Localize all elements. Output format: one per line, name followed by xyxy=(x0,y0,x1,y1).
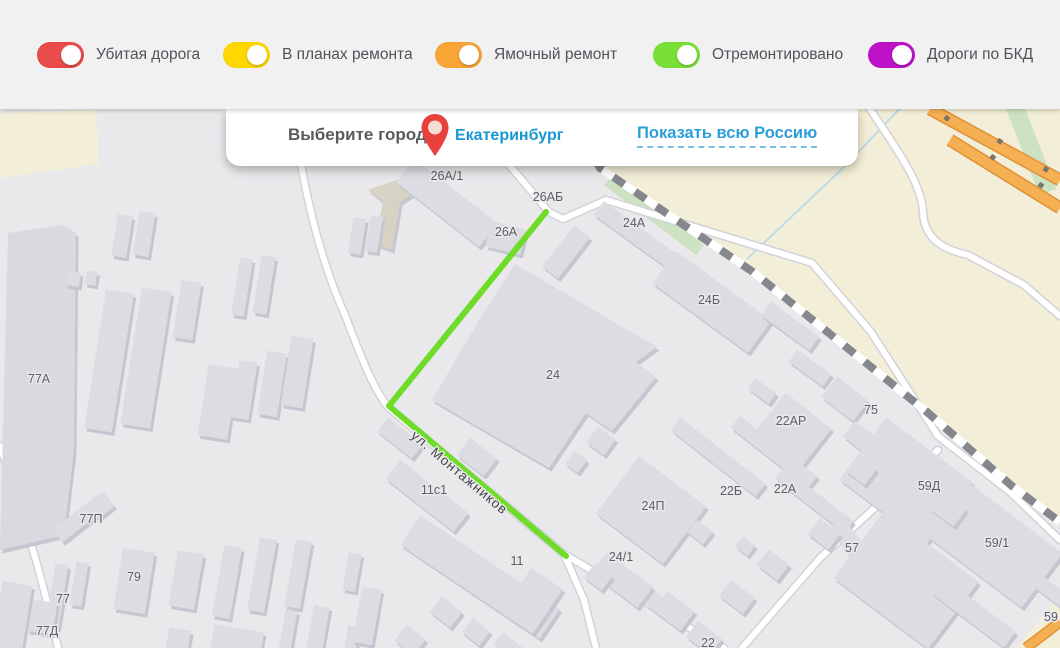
toggle-label: Отремонтировано xyxy=(712,46,843,64)
map-label: 26АБ xyxy=(533,190,563,204)
show-all-russia-link[interactable]: Показать всю Россию xyxy=(637,124,817,148)
toggle-dead-road[interactable] xyxy=(37,42,84,68)
map-label: 26А xyxy=(495,225,518,239)
map-label: 57 xyxy=(845,541,859,555)
map-label: 22Б xyxy=(720,484,742,498)
toggle-label: Убитая дорога xyxy=(96,46,200,64)
toggle-patch-repair[interactable] xyxy=(435,42,482,68)
city-panel: Выберите город: Екатеринбург Показать вс… xyxy=(226,109,858,166)
map-label: 24Б xyxy=(698,293,720,307)
toggle-bkd-roads[interactable] xyxy=(868,42,915,68)
map-label: 11 xyxy=(511,554,524,568)
map-label: 59 xyxy=(1044,610,1058,624)
map-label: 79 xyxy=(127,570,141,584)
map-label: 26А/1 xyxy=(431,169,464,183)
map-pin-icon xyxy=(420,112,450,158)
toggle-knob xyxy=(677,45,697,65)
toggle-repaired[interactable] xyxy=(653,42,700,68)
toggle-planned-repair[interactable] xyxy=(223,42,270,68)
toggle-label: Дороги по БКД xyxy=(927,46,1033,64)
toggle-group-planned: В планах ремонта xyxy=(223,42,413,68)
map-label: 77А xyxy=(28,372,51,386)
map-label: 24А xyxy=(623,216,646,230)
map-label: 11с1 xyxy=(421,483,447,497)
toggle-group-patch-repair: Ямочный ремонт xyxy=(435,42,617,68)
selected-city[interactable]: Екатеринбург xyxy=(455,127,563,145)
toggle-knob xyxy=(459,45,479,65)
map-label: 22 xyxy=(701,636,715,648)
choose-city-label: Выберите город: xyxy=(288,125,432,145)
map-label: 24 xyxy=(546,368,560,382)
map-label: 24П xyxy=(642,499,665,513)
toggle-knob xyxy=(247,45,267,65)
map-label: 59Д xyxy=(918,479,941,493)
map-label: 77П xyxy=(80,512,103,526)
legend-bar: Убитая дорога В планах ремонта Ямочный р… xyxy=(0,0,1060,109)
map-label: 77 xyxy=(56,592,70,606)
map-label: 59/1 xyxy=(985,536,1009,550)
toggle-group-bkd-roads: Дороги по БКД xyxy=(868,42,1033,68)
map-label: 75 xyxy=(864,403,878,417)
map-label: 24/1 xyxy=(609,550,633,564)
toggle-knob xyxy=(892,45,912,65)
toggle-label: Ямочный ремонт xyxy=(494,46,617,64)
toggle-label: В планах ремонта xyxy=(282,46,413,64)
toggle-knob xyxy=(61,45,81,65)
map-label: 22А xyxy=(774,482,797,496)
map-label: 22АР xyxy=(776,414,807,428)
toggle-group-repaired: Отремонтировано xyxy=(653,42,843,68)
toggle-group-dead-road: Убитая дорога xyxy=(37,42,200,68)
map-label: 77Д xyxy=(36,624,59,638)
